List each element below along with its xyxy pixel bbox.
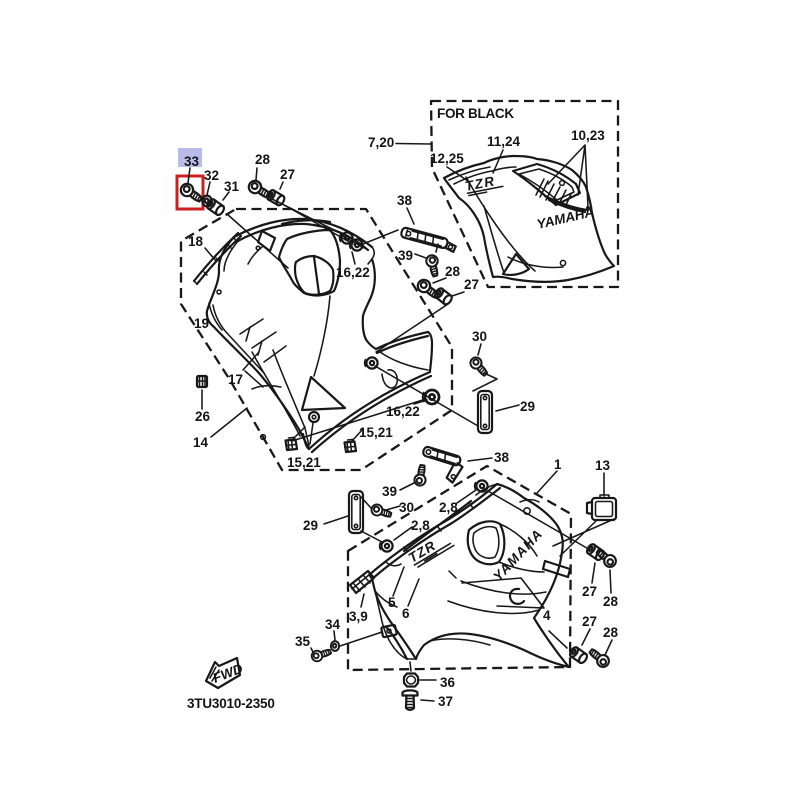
svg-text:6: 6 [402,606,410,621]
svg-text:15,21: 15,21 [287,455,321,470]
svg-text:27: 27 [464,277,479,292]
svg-text:18: 18 [188,234,204,249]
svg-text:1: 1 [554,457,562,472]
svg-text:2,8: 2,8 [411,518,430,533]
svg-text:27: 27 [280,167,295,182]
svg-text:30: 30 [399,500,414,515]
svg-text:35: 35 [295,634,311,649]
svg-text:26: 26 [195,409,211,424]
svg-text:38: 38 [397,193,413,208]
svg-text:16,22: 16,22 [336,265,370,280]
svg-text:15,21: 15,21 [359,425,393,440]
svg-text:13: 13 [595,458,611,473]
svg-text:29: 29 [303,518,318,533]
svg-text:38: 38 [494,450,510,465]
svg-text:30: 30 [472,329,487,344]
svg-text:33: 33 [184,154,200,169]
svg-text:28: 28 [255,152,271,167]
svg-text:36: 36 [440,675,456,690]
svg-text:3,9: 3,9 [349,609,368,624]
svg-text:4: 4 [543,608,551,623]
svg-text:3TU3010-2350: 3TU3010-2350 [187,696,275,711]
svg-text:39: 39 [382,484,397,499]
svg-text:17: 17 [228,372,243,387]
svg-text:27: 27 [582,584,597,599]
svg-text:39: 39 [398,248,413,263]
svg-text:19: 19 [194,316,209,331]
svg-text:FOR BLACK: FOR BLACK [437,106,514,121]
svg-text:29: 29 [520,399,535,414]
svg-text:32: 32 [204,168,219,183]
svg-text:34: 34 [325,617,341,632]
svg-text:31: 31 [224,179,240,194]
svg-text:28: 28 [603,594,619,609]
svg-text:28: 28 [603,625,619,640]
svg-text:11,24: 11,24 [487,134,521,149]
svg-text:37: 37 [438,694,453,709]
svg-text:14: 14 [193,435,209,450]
svg-text:12,25: 12,25 [430,151,464,166]
svg-text:7,20: 7,20 [368,135,394,150]
svg-text:2,8: 2,8 [439,500,458,515]
svg-text:27: 27 [582,614,597,629]
svg-text:28: 28 [445,264,461,279]
svg-text:5: 5 [388,595,396,610]
svg-text:10,23: 10,23 [571,128,605,143]
